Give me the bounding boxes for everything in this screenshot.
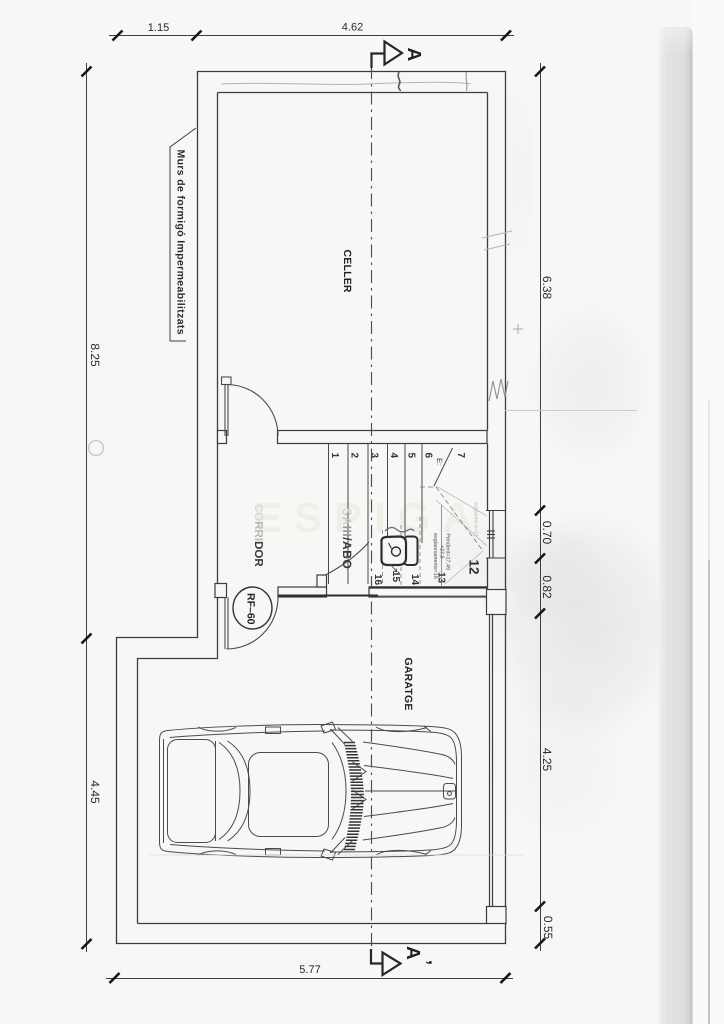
svg-text:1.15: 1.15 (148, 22, 169, 34)
svg-text:· Pendent=17,49: · Pendent=17,49 (445, 530, 451, 570)
svg-text:8.25: 8.25 (88, 343, 102, 367)
svg-text:SAIII/ABO: SAIII/ABO (340, 508, 354, 569)
svg-text:CELLER: CELLER (341, 250, 353, 293)
svg-text:5: 5 (406, 453, 417, 459)
svg-text:3: 3 (369, 453, 380, 459)
svg-text:14: 14 (409, 574, 420, 586)
svg-text:4.25: 4.25 (540, 748, 554, 772)
svg-text:+27,5: +27,5 (439, 545, 445, 559)
svg-text:A: A (402, 946, 423, 960)
svg-text:0.70: 0.70 (540, 521, 554, 545)
svg-text:0.82: 0.82 (540, 575, 554, 599)
svg-text:esglaonaments=18: esglaonaments=18 (432, 533, 438, 579)
svg-text:4.45: 4.45 (88, 780, 102, 804)
svg-text:,: , (425, 960, 445, 965)
svg-text:6.38: 6.38 (540, 276, 554, 300)
svg-text:7: 7 (455, 453, 466, 459)
svg-text:16: 16 (372, 574, 383, 586)
svg-text:15: 15 (390, 571, 401, 583)
svg-text:A: A (403, 48, 424, 62)
svg-text:6: 6 (423, 453, 434, 459)
svg-text:esglaons n=11: esglaons n=11 (473, 502, 479, 537)
svg-text:RF–60: RF–60 (245, 593, 257, 625)
svg-text:5.77: 5.77 (299, 964, 320, 976)
svg-text:Murs de formigó Impermeabilitz: Murs de formigó Impermeabilitzats (175, 150, 187, 335)
svg-text:0.55: 0.55 (541, 916, 555, 940)
svg-text:GARATGE: GARATGE (402, 658, 414, 711)
svg-text:E:: E: (435, 458, 444, 465)
svg-text:4: 4 (388, 453, 399, 459)
svg-text:CORRIDOR: CORRIDOR (252, 504, 264, 567)
svg-text:2: 2 (349, 453, 360, 459)
svg-text:12: 12 (467, 560, 482, 575)
svg-text:4.62: 4.62 (342, 22, 363, 34)
svg-text:1: 1 (329, 453, 340, 459)
